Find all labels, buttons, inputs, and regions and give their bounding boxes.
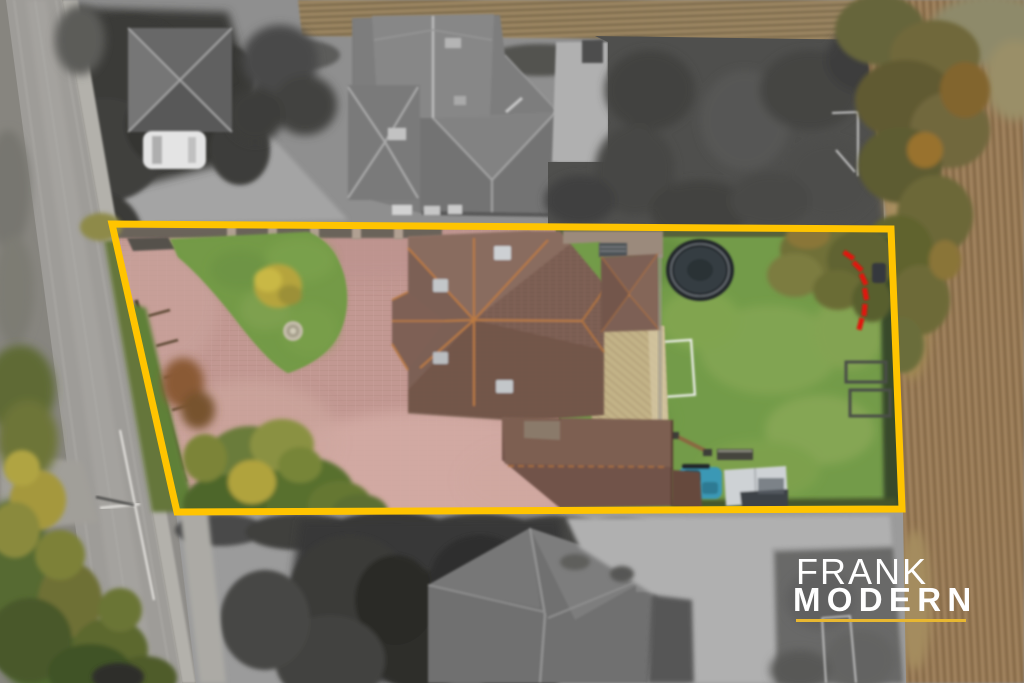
svg-text:MODERN: MODERN [793,581,977,618]
